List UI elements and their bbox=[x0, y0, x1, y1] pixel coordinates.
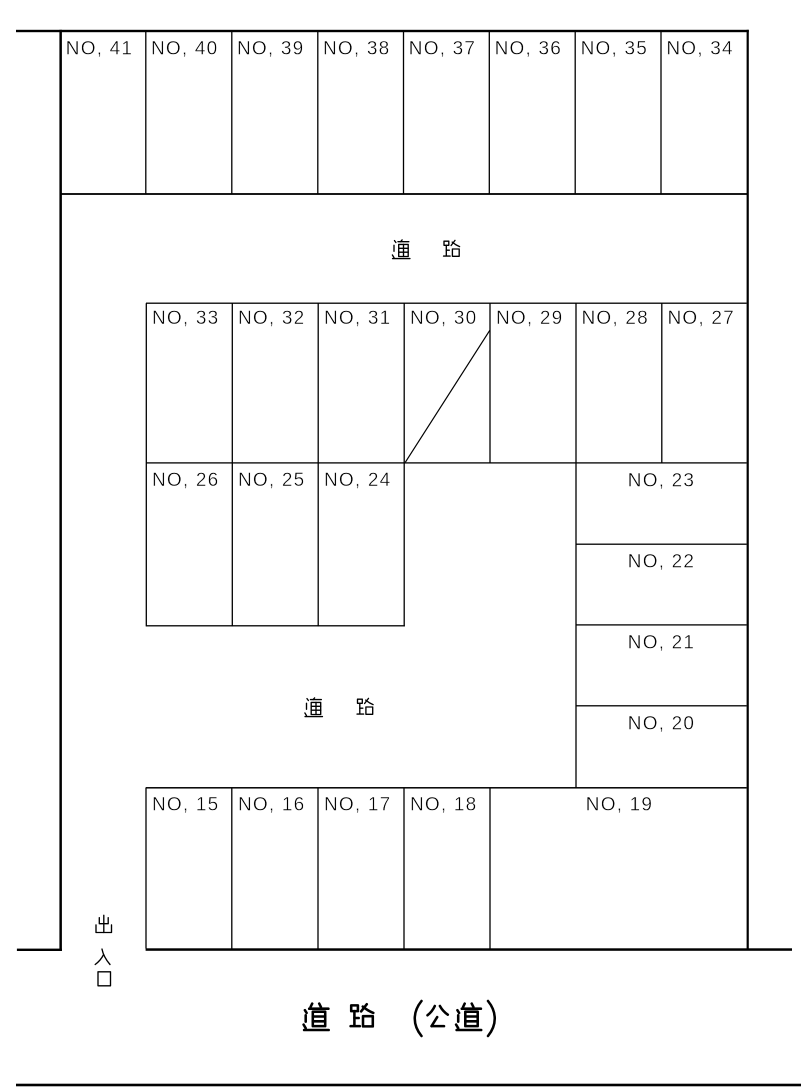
svg-text:NO, 21: NO, 21 bbox=[628, 633, 695, 654]
svg-text:NO, 38: NO, 38 bbox=[323, 39, 390, 60]
svg-text:NO, 37: NO, 37 bbox=[409, 39, 476, 60]
svg-text:NO, 16: NO, 16 bbox=[238, 795, 305, 816]
svg-text:NO, 40: NO, 40 bbox=[151, 39, 218, 60]
svg-text:NO, 22: NO, 22 bbox=[628, 552, 695, 573]
svg-text:NO, 34: NO, 34 bbox=[666, 39, 733, 60]
svg-text:NO, 17: NO, 17 bbox=[324, 795, 391, 816]
svg-text:NO, 15: NO, 15 bbox=[152, 795, 219, 816]
svg-text:NO, 24: NO, 24 bbox=[324, 470, 391, 491]
svg-text:NO, 31: NO, 31 bbox=[324, 308, 391, 329]
svg-text:NO, 39: NO, 39 bbox=[237, 39, 304, 60]
svg-text:NO, 30: NO, 30 bbox=[410, 308, 477, 329]
svg-text:NO, 23: NO, 23 bbox=[628, 471, 695, 492]
svg-text:NO, 33: NO, 33 bbox=[152, 308, 219, 329]
svg-text:NO, 26: NO, 26 bbox=[152, 470, 219, 491]
svg-text:NO, 29: NO, 29 bbox=[496, 308, 563, 329]
svg-text:NO, 32: NO, 32 bbox=[238, 308, 305, 329]
svg-text:NO, 19: NO, 19 bbox=[586, 795, 653, 816]
svg-text:NO, 36: NO, 36 bbox=[495, 39, 562, 60]
svg-text:NO, 41: NO, 41 bbox=[66, 39, 133, 60]
svg-text:NO, 27: NO, 27 bbox=[668, 308, 735, 329]
svg-text:NO, 25: NO, 25 bbox=[238, 470, 305, 491]
svg-text:NO, 28: NO, 28 bbox=[582, 308, 649, 329]
svg-text:NO, 20: NO, 20 bbox=[628, 713, 695, 734]
svg-text:NO, 35: NO, 35 bbox=[581, 39, 648, 60]
svg-text:NO, 18: NO, 18 bbox=[410, 795, 477, 816]
